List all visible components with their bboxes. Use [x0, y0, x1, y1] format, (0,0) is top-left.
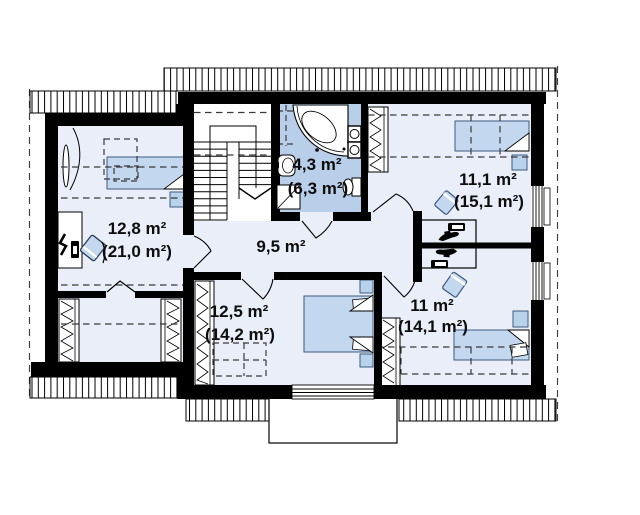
svg-text:(14,2 m²): (14,2 m²): [205, 325, 275, 344]
svg-text:12,8 m²: 12,8 m²: [108, 219, 167, 238]
svg-text:4,3 m²: 4,3 m²: [292, 155, 341, 174]
svg-text:(15,1 m²): (15,1 m²): [454, 192, 524, 211]
svg-text:(6,3 m²): (6,3 m²): [288, 179, 348, 198]
svg-text:11 m²: 11 m²: [410, 296, 454, 315]
svg-text:12,5 m²: 12,5 m²: [210, 302, 269, 321]
svg-text:11,1 m²: 11,1 m²: [459, 170, 517, 189]
svg-text:(21,0 m²): (21,0 m²): [102, 242, 172, 261]
svg-text:(14,1 m²): (14,1 m²): [398, 317, 468, 336]
svg-text:9,5 m²: 9,5 m²: [256, 237, 305, 256]
